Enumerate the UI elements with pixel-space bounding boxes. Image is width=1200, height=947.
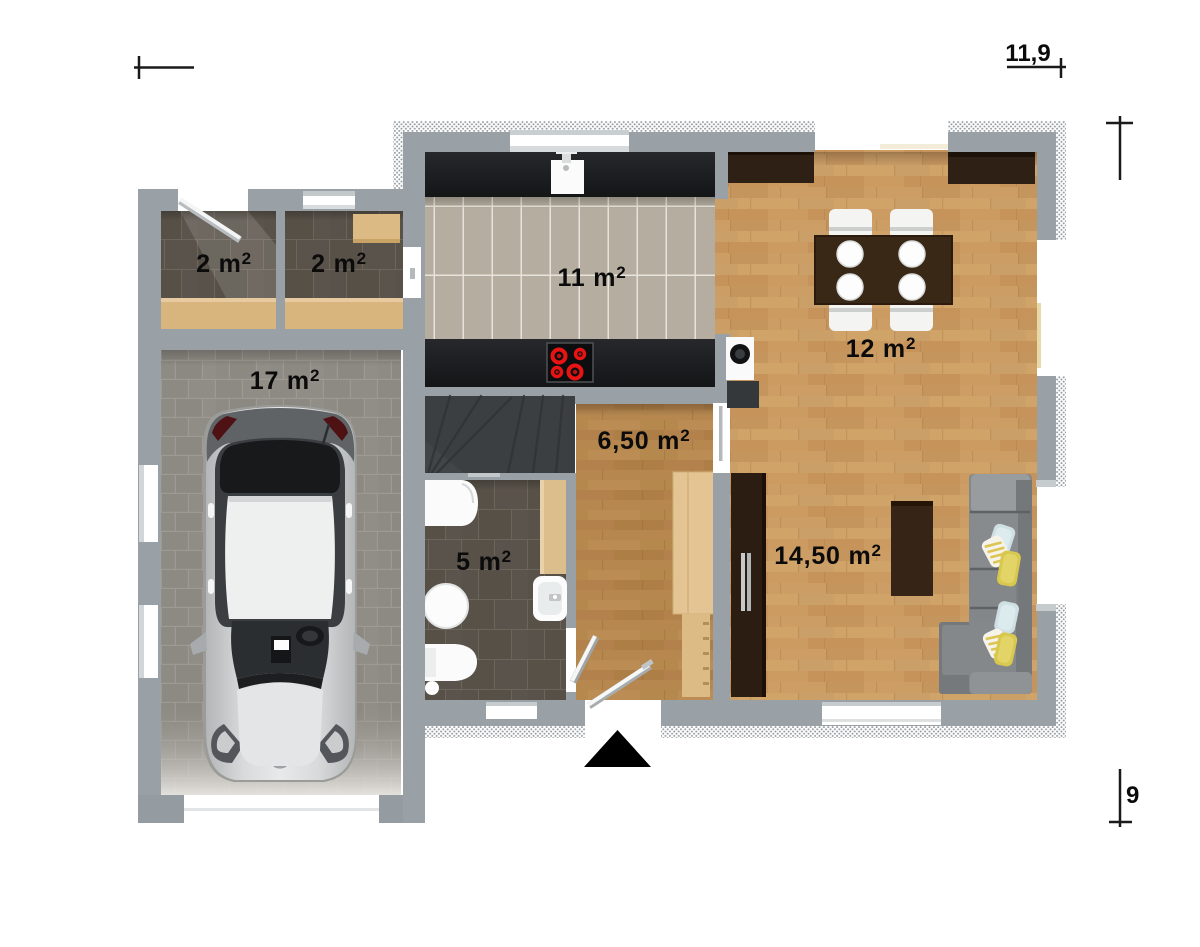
svg-text:11 m2: 11 m2 [557,263,626,292]
svg-text:17 m2: 17 m2 [250,366,320,395]
svg-text:12 m2: 12 m2 [846,334,916,363]
svg-text:14,50 m2: 14,50 m2 [774,541,882,570]
svg-text:11,9: 11,9 [1005,40,1050,67]
svg-text:9: 9 [1126,782,1139,809]
svg-text:6,50 m2: 6,50 m2 [598,426,691,455]
